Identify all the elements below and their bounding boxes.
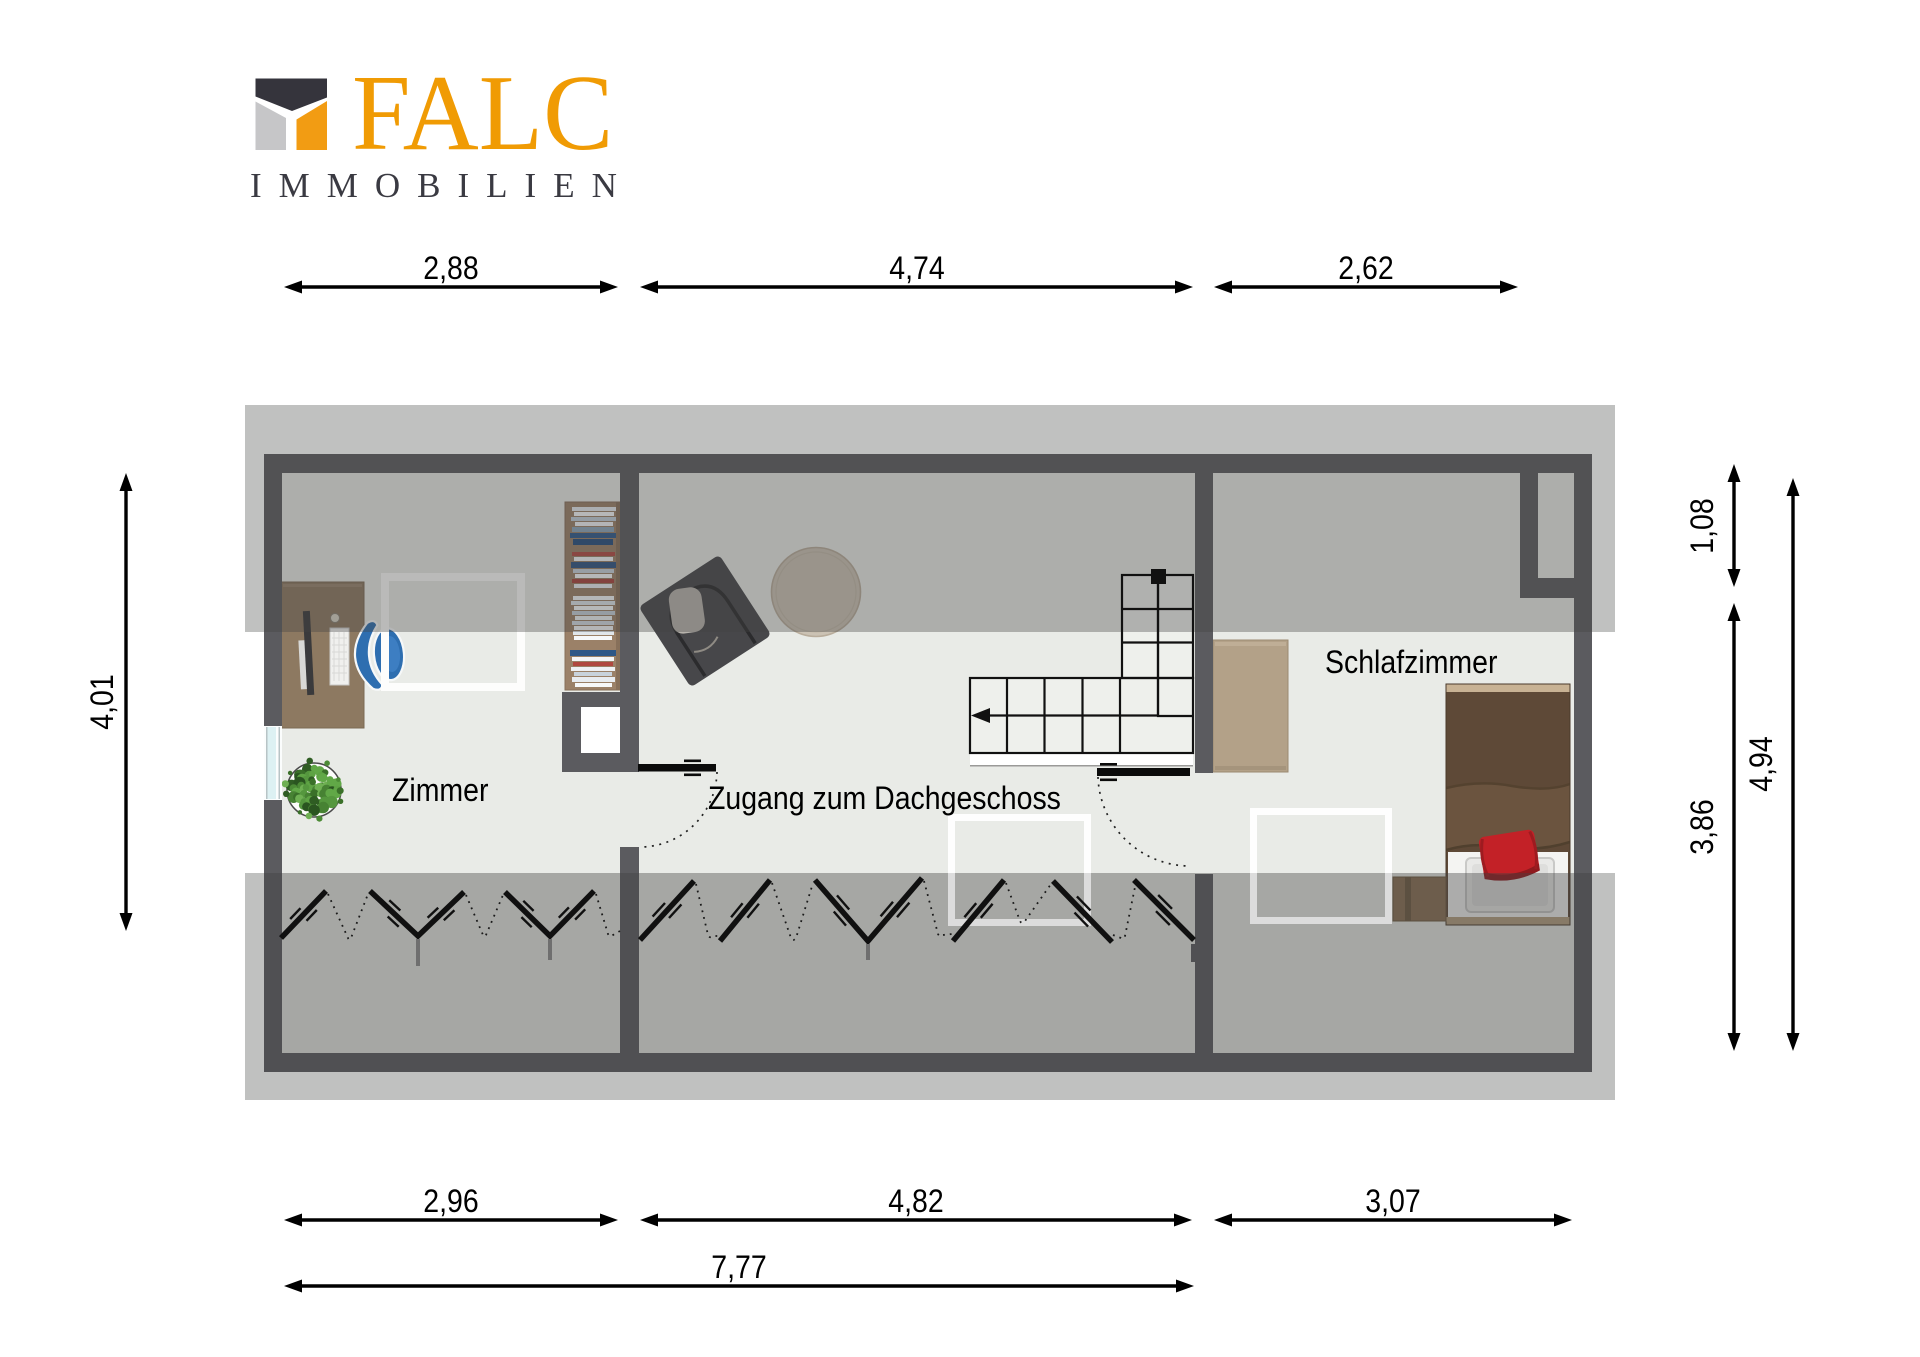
svg-text:4,82: 4,82 (888, 1185, 943, 1220)
svg-text:IMMOBILIEN: IMMOBILIEN (250, 166, 634, 205)
svg-text:7,77: 7,77 (711, 1251, 766, 1286)
svg-text:Schlafzimmer: Schlafzimmer (1325, 646, 1497, 681)
svg-text:3,07: 3,07 (1365, 1185, 1420, 1220)
svg-text:2,62: 2,62 (1338, 252, 1393, 287)
svg-text:Zugang zum Dachgeschoss: Zugang zum Dachgeschoss (708, 782, 1061, 817)
svg-text:FALC: FALC (352, 54, 613, 173)
svg-text:4,74: 4,74 (889, 252, 944, 287)
svg-text:Zimmer: Zimmer (392, 774, 488, 809)
svg-text:4,94: 4,94 (1745, 736, 1780, 791)
svg-text:2,96: 2,96 (423, 1185, 478, 1220)
svg-text:2,88: 2,88 (423, 252, 478, 287)
svg-text:3,86: 3,86 (1686, 799, 1721, 854)
svg-text:4,01: 4,01 (86, 674, 121, 729)
svg-text:1,08: 1,08 (1686, 498, 1721, 553)
